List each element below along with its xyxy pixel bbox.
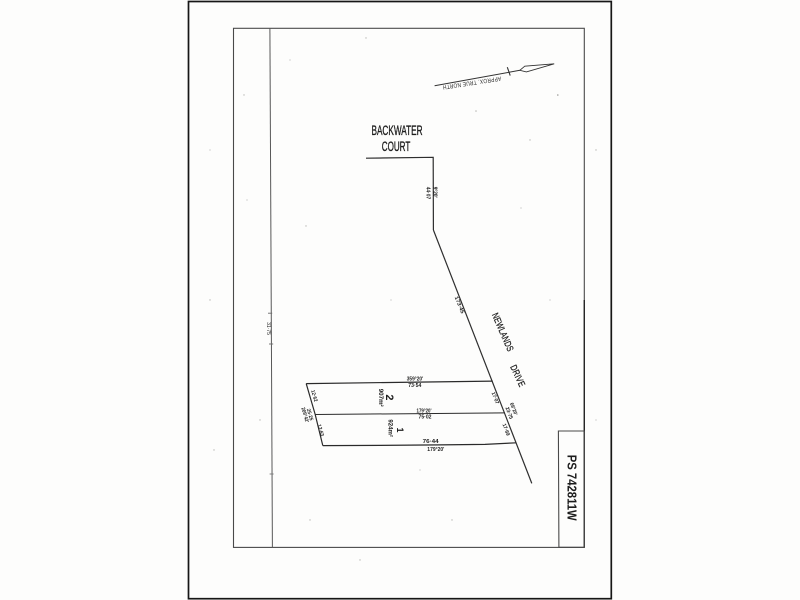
svg-text:COURT: COURT xyxy=(382,139,411,154)
svg-text:9°20': 9°20' xyxy=(431,187,437,198)
svg-text:BACKWATER: BACKWATER xyxy=(372,123,423,138)
svg-text:44·07: 44·07 xyxy=(425,187,431,200)
svg-text:76·44: 76·44 xyxy=(423,439,439,445)
svg-text:924m²: 924m² xyxy=(387,419,394,437)
svg-text:907m²: 907m² xyxy=(377,389,384,407)
svg-text:75·02: 75·02 xyxy=(419,414,432,420)
svg-text:PS 742811W: PS 742811W xyxy=(565,455,580,522)
svg-text:359°20': 359°20' xyxy=(407,376,424,382)
svg-text:73·54: 73·54 xyxy=(408,383,421,389)
svg-text:179°20': 179°20' xyxy=(427,447,444,453)
svg-text:1: 1 xyxy=(395,427,405,432)
svg-text:31·75: 31·75 xyxy=(265,322,271,335)
